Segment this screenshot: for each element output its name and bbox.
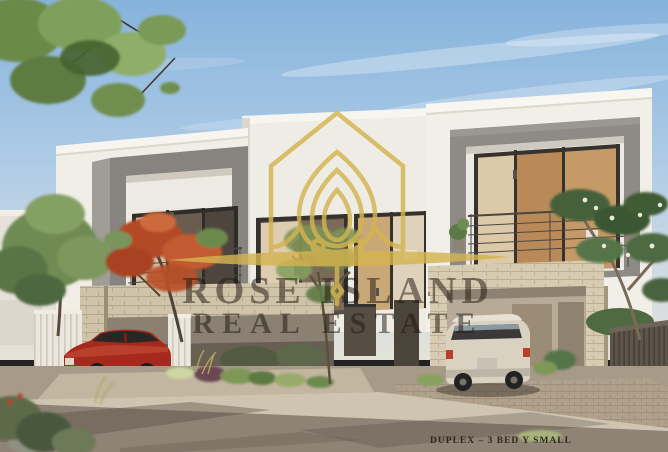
unit-type-caption: DUPLEX – 3 BED Y SMALL: [430, 436, 572, 446]
property-rendering: ROSE ISLAND REAL ESTATE DUPLEX – 3 BED Y…: [0, 0, 668, 452]
scene: [0, 0, 668, 452]
right-wall-light: [513, 170, 517, 179]
watermark-brand-line2: REAL ESTATE: [192, 309, 483, 339]
watermark-brand-line1: ROSE ISLAND: [182, 272, 494, 310]
